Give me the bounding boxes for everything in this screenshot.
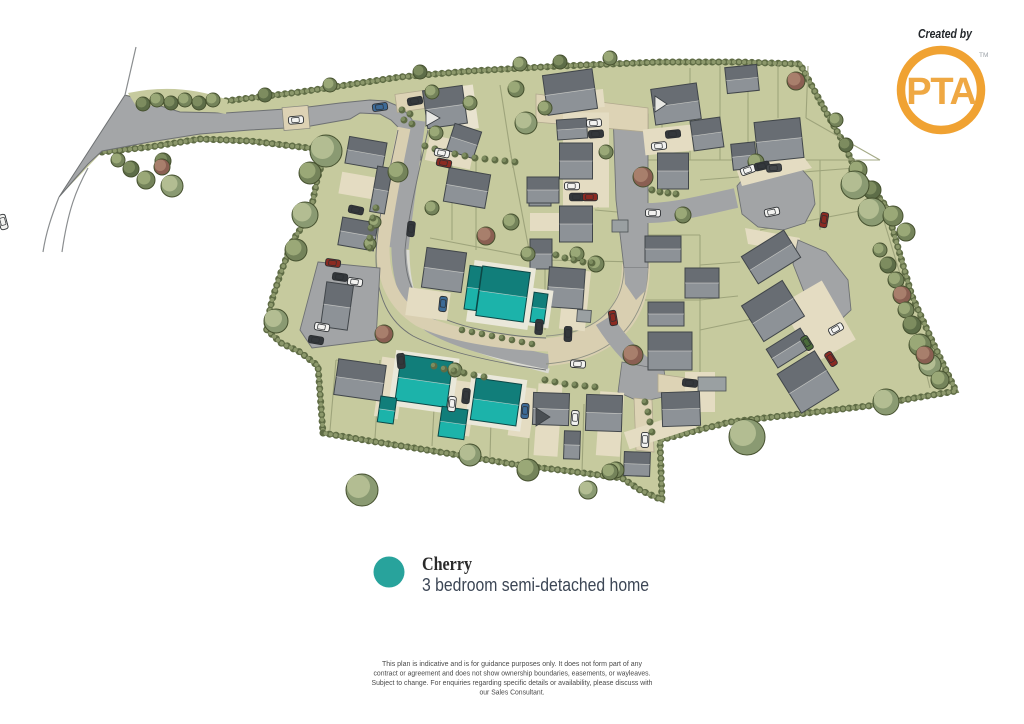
svg-text:3 bedroom semi-detached home: 3 bedroom semi-detached home (422, 574, 649, 595)
svg-text:PTA: PTA (906, 71, 976, 113)
svg-text:TM: TM (979, 52, 988, 59)
svg-text:Subject to change. For enquiri: Subject to change. For enquiries regardi… (372, 680, 653, 687)
svg-text:Created by: Created by (918, 27, 973, 41)
svg-text:our Sales Consultant.: our Sales Consultant. (480, 690, 545, 697)
svg-text:contract or agreement and does: contract or agreement and does not show … (374, 671, 651, 678)
svg-text:Cherry: Cherry (422, 554, 472, 575)
svg-text:This plan is indicative and is: This plan is indicative and is for guida… (382, 661, 642, 668)
